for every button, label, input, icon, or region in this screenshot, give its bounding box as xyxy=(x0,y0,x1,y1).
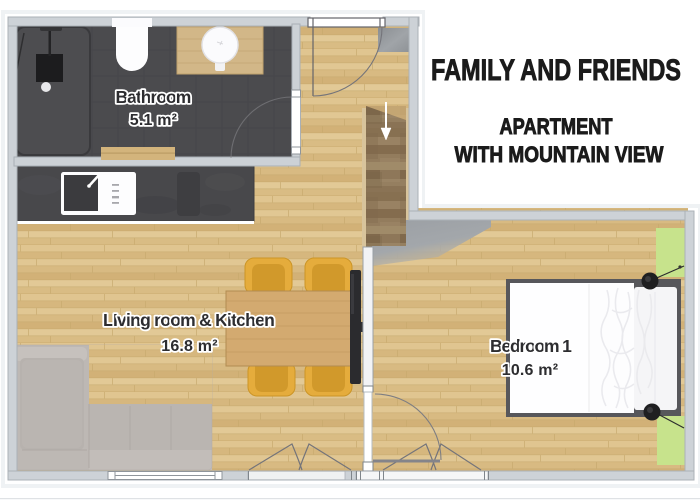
svg-text:LIving room & Kitchen: LIving room & Kitchen xyxy=(103,310,275,330)
svg-text:FAMILY AND FRIENDS: FAMILY AND FRIENDS xyxy=(431,54,681,87)
svg-text:Bathroom: Bathroom xyxy=(116,87,192,107)
svg-text:Bedroom 1: Bedroom 1 xyxy=(490,336,572,356)
svg-text:5.1 m²: 5.1 m² xyxy=(130,112,177,129)
svg-text:WITH MOUNTAIN VIEW: WITH MOUNTAIN VIEW xyxy=(455,142,664,167)
svg-text:APARTMENT: APARTMENT xyxy=(500,114,613,139)
svg-text:16.8 m²: 16.8 m² xyxy=(161,338,218,355)
svg-text:10.6 m²: 10.6 m² xyxy=(502,362,559,379)
